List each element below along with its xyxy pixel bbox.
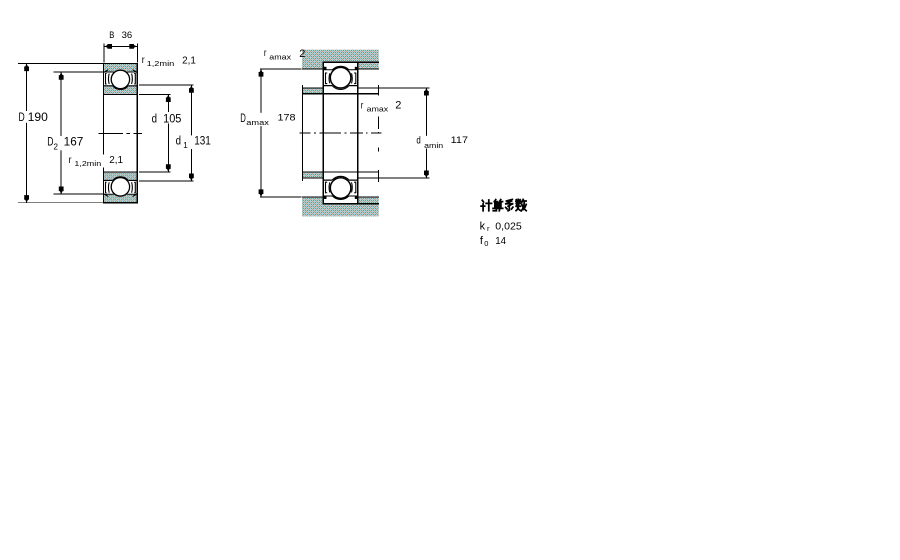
- svg-text:167: 167: [64, 136, 84, 148]
- svg-text:117: 117: [451, 135, 468, 146]
- svg-text:0: 0: [484, 239, 488, 248]
- svg-text:D: D: [240, 113, 246, 125]
- svg-text:amax: amax: [269, 53, 291, 62]
- svg-text:d: d: [152, 113, 157, 125]
- svg-text:105: 105: [163, 113, 181, 125]
- svg-text:190: 190: [28, 112, 48, 124]
- svg-text:2: 2: [395, 100, 401, 112]
- svg-text:2: 2: [54, 142, 59, 151]
- svg-text:14: 14: [495, 235, 506, 247]
- svg-text:1,2min: 1,2min: [74, 159, 101, 168]
- svg-text:2,1: 2,1: [182, 54, 196, 66]
- svg-text:1,2min: 1,2min: [147, 59, 175, 68]
- svg-text:amax: amax: [367, 105, 389, 114]
- svg-text:amin: amin: [424, 141, 443, 150]
- svg-text:d: d: [416, 136, 420, 147]
- svg-text:2: 2: [299, 48, 305, 60]
- svg-text:k: k: [480, 220, 486, 232]
- svg-text:1: 1: [183, 141, 188, 150]
- svg-text:0,025: 0,025: [495, 220, 522, 232]
- svg-text:amax: amax: [246, 118, 269, 127]
- svg-text:131: 131: [194, 136, 211, 148]
- svg-text:178: 178: [278, 113, 296, 124]
- svg-text:D: D: [47, 136, 53, 148]
- svg-text:D: D: [19, 112, 25, 124]
- svg-text:2,1: 2,1: [109, 154, 123, 166]
- svg-text:36: 36: [122, 30, 133, 41]
- svg-text:d: d: [176, 136, 181, 148]
- svg-text:B: B: [109, 30, 114, 41]
